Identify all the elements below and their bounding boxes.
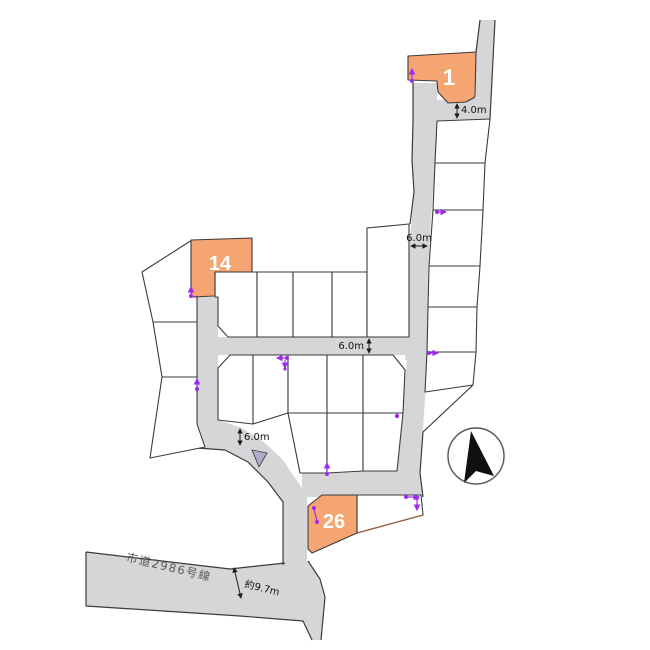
plots <box>142 119 490 533</box>
lot-26-number: 26 <box>323 511 345 533</box>
road-city-2986 <box>86 552 325 640</box>
plot-mid-a2 <box>253 355 288 424</box>
plot-right-6 <box>425 352 476 392</box>
north-arrow-icon <box>448 428 504 484</box>
plot-map-canvas: 1 14 26 4.0m 6.0m 6.0m 6.0m 約9.7m 市道2986… <box>0 0 650 650</box>
plot-mid-a4 <box>327 355 363 413</box>
dim-top-road: 4.0m <box>461 105 487 116</box>
land-plot-map: 1 14 26 4.0m 6.0m 6.0m 6.0m 約9.7m 市道2986… <box>0 0 650 650</box>
plot-right-1 <box>435 119 490 163</box>
road-left-vertical <box>197 297 218 427</box>
plot-left-1 <box>142 240 197 322</box>
road-middle-horizontal <box>197 337 430 355</box>
lot-1-number: 1 <box>443 65 455 90</box>
plot-mid-b1 <box>288 413 327 473</box>
plot-right-4 <box>428 266 480 307</box>
dim-middle-road: 6.0m <box>338 341 364 352</box>
plot-right-2 <box>433 163 485 210</box>
dim-junction-road: 6.0m <box>244 432 270 443</box>
plot-mid-b3 <box>363 413 403 471</box>
lot-14-number: 14 <box>209 253 232 275</box>
plot-mid-top-4 <box>332 272 367 337</box>
plot-mid-top-3 <box>293 272 332 337</box>
plot-right-5 <box>427 307 477 352</box>
plot-left-2 <box>153 322 197 377</box>
plot-right-3 <box>429 210 483 266</box>
plot-mid-top-5 <box>367 224 409 337</box>
plot-mid-top-2 <box>257 272 293 337</box>
dim-right-road: 6.0m <box>406 233 432 244</box>
plot-mid-a1 <box>218 355 253 424</box>
plot-south-east <box>357 495 423 533</box>
plot-mid-b2 <box>327 413 363 473</box>
plot-mid-a5 <box>363 355 405 413</box>
plot-mid-top-1 <box>215 272 257 337</box>
plot-mid-a3 <box>288 355 327 413</box>
